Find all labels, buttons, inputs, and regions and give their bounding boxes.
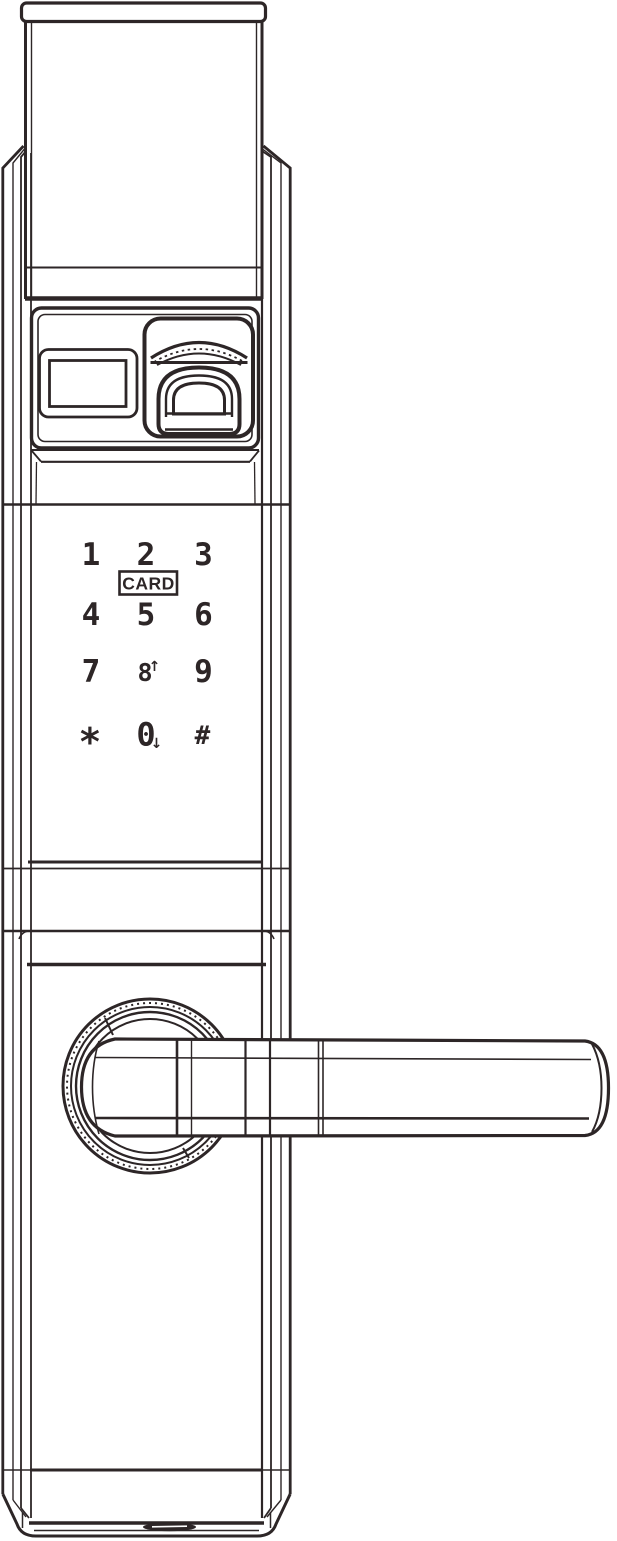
keypad-key-2[interactable]: 2: [137, 537, 156, 573]
keypad-key-0-menu-down[interactable]: 0 ↓: [136, 716, 162, 754]
fingerprint-dome-outer: [159, 368, 240, 435]
lever-grip-outline: [82, 1039, 609, 1136]
fingerprint-module-frame: [145, 319, 254, 437]
section-divider-lines: [3, 505, 290, 1471]
keypad-key-5[interactable]: 5: [137, 597, 156, 633]
handle-lever[interactable]: [82, 1039, 609, 1136]
fingerprint-window: [174, 383, 225, 414]
top-cap: [22, 3, 266, 22]
door-lock-technical-drawing: 1 2 3 CARD 4 5 6 7 8 ↑ 9 * 0 ↓ #: [0, 0, 617, 1541]
sensor-panel: [32, 308, 260, 504]
keypad-key-1[interactable]: 1: [82, 537, 101, 573]
fingerprint-scanner-icon[interactable]: [145, 319, 254, 437]
lever-bottom-contour: [95, 1118, 589, 1119]
keypad-key-4[interactable]: 4: [82, 597, 101, 633]
panel-bevel-transition: [32, 450, 260, 504]
top-block-sides: [26, 22, 263, 300]
up-arrow-icon: ↑: [149, 659, 161, 675]
escutcheon-body: [3, 146, 290, 1536]
keypad-key-7[interactable]: 7: [82, 654, 101, 690]
keypad-key-8-menu-up[interactable]: 8 ↑: [137, 658, 160, 687]
card-reader-zone[interactable]: CARD: [120, 572, 178, 595]
top-spindle-block: [22, 3, 266, 299]
door-lock-figure: 1 2 3 CARD 4 5 6 7 8 ↑ 9 * 0 ↓ #: [0, 0, 617, 1541]
body-contour-lines-right: [262, 146, 290, 1518]
body-bottom: [3, 1494, 290, 1536]
body-contour-lines-left: [3, 146, 31, 1518]
display-screen: [40, 350, 138, 418]
down-arrow-icon: ↓: [151, 736, 163, 752]
card-reader-label: CARD: [122, 574, 175, 594]
keypad-key-9[interactable]: 9: [194, 654, 213, 690]
keypad-key-3[interactable]: 3: [194, 537, 213, 573]
keypad-key-hash[interactable]: #: [195, 721, 211, 751]
keypad-key-star[interactable]: *: [79, 720, 102, 764]
keypad-key-6[interactable]: 6: [194, 597, 213, 633]
keypad: 1 2 3 CARD 4 5 6 7 8 ↑ 9 * 0 ↓ #: [79, 537, 213, 764]
bottom-port-oval: [143, 1523, 196, 1531]
handle-assembly: [63, 999, 609, 1173]
